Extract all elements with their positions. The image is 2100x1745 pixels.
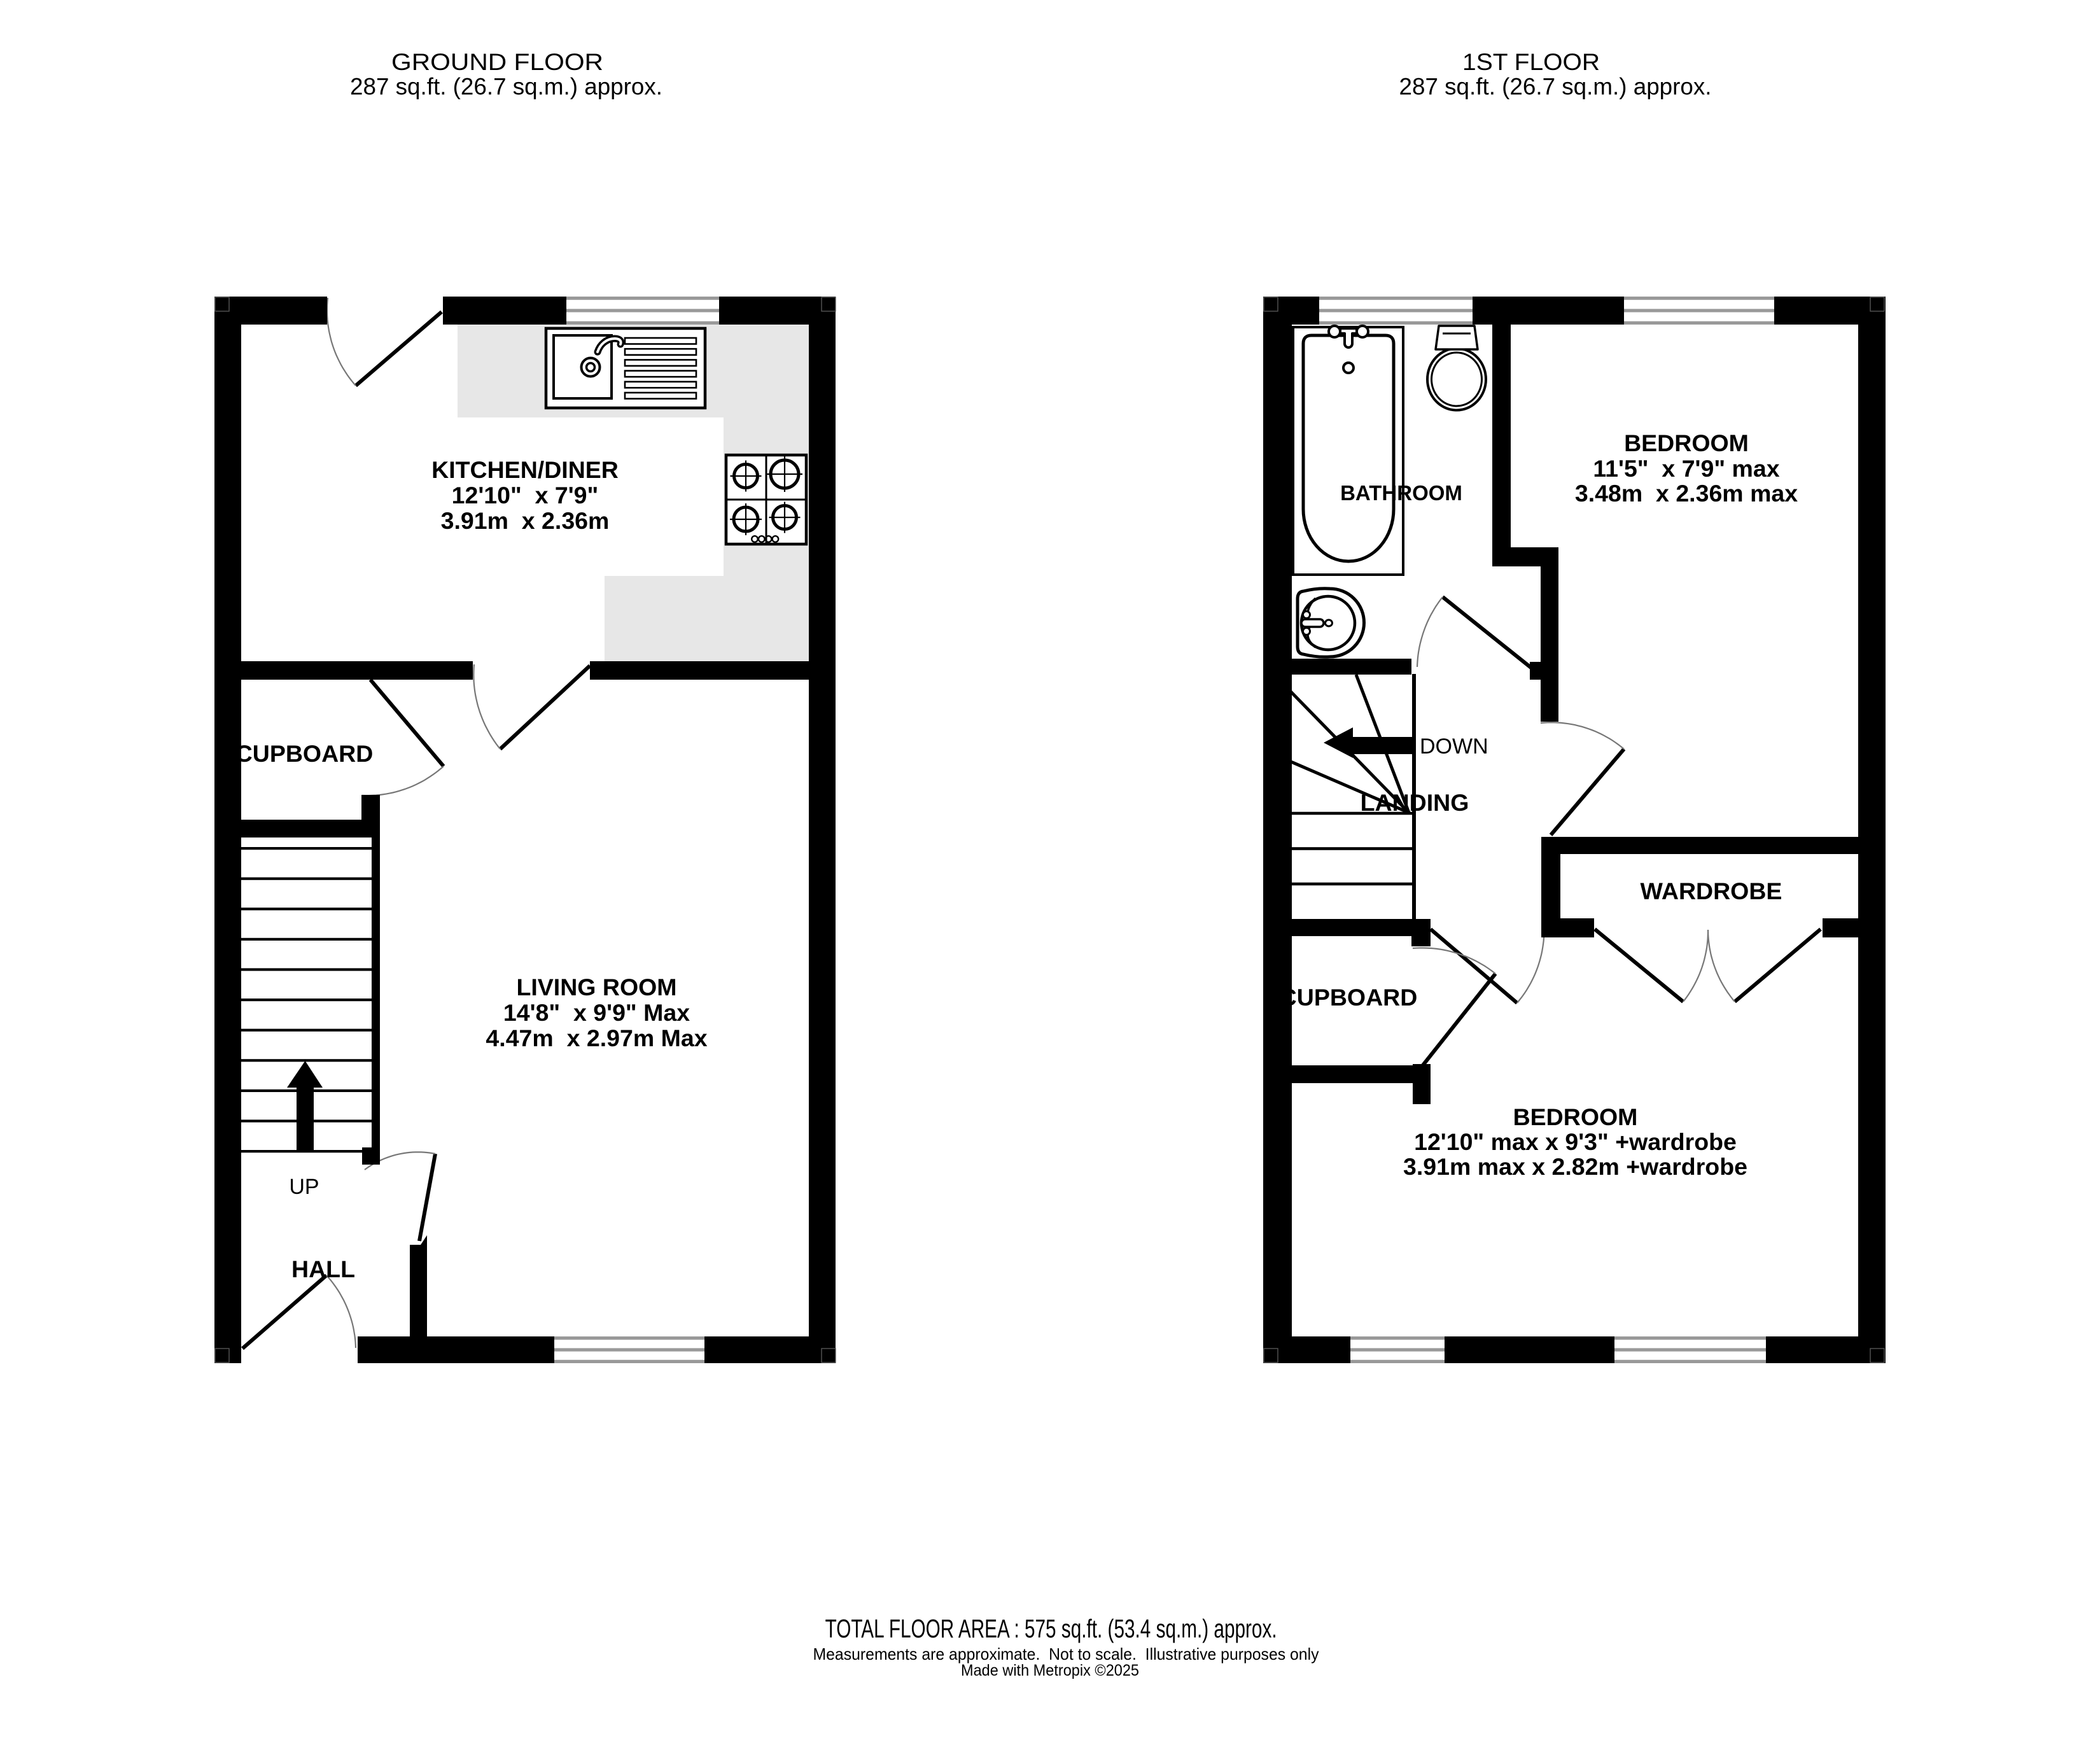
svg-text:3.91m max x 2.82m +wardrobe: 3.91m max x 2.82m +wardrobe	[1403, 1153, 1747, 1180]
svg-text:WARDROBE: WARDROBE	[1641, 878, 1782, 904]
svg-text:12'10" max x 9'3" +wardrobe: 12'10" max x 9'3" +wardrobe	[1414, 1128, 1737, 1155]
svg-text:Measurements are approximate.: Measurements are approximate. Not to sca…	[813, 1644, 1319, 1664]
svg-text:CUPBOARD: CUPBOARD	[1280, 984, 1418, 1011]
svg-text:287 sq.ft. (26.7 sq.m.) approx: 287 sq.ft. (26.7 sq.m.) approx.	[1399, 74, 1712, 100]
svg-text:1ST FLOOR: 1ST FLOOR	[1462, 49, 1600, 75]
svg-text:BATHROOM: BATHROOM	[1340, 481, 1462, 505]
svg-text:KITCHEN/DINER: KITCHEN/DINER	[431, 456, 619, 483]
svg-text:12'10" x 7'9": 12'10" x 7'9"	[452, 482, 599, 508]
svg-text:4.47m x 2.97m Max: 4.47m x 2.97m Max	[486, 1025, 707, 1051]
svg-text:UP: UP	[289, 1175, 319, 1199]
svg-text:Made with Metropix ©2025: Made with Metropix ©2025	[961, 1662, 1139, 1679]
svg-text:11'5" x 7'9" max: 11'5" x 7'9" max	[1593, 455, 1779, 482]
svg-text:LIVING ROOM: LIVING ROOM	[516, 974, 676, 1000]
svg-text:BEDROOM: BEDROOM	[1624, 430, 1749, 456]
svg-text:3.48m x 2.36m max: 3.48m x 2.36m max	[1575, 480, 1798, 507]
svg-text:3.91m x 2.36m: 3.91m x 2.36m	[441, 507, 610, 534]
svg-text:287 sq.ft. (26.7 sq.m.) approx: 287 sq.ft. (26.7 sq.m.) approx.	[350, 74, 662, 100]
svg-text:DOWN: DOWN	[1420, 734, 1488, 759]
svg-text:14'8" x 9'9" Max: 14'8" x 9'9" Max	[503, 999, 690, 1026]
svg-text:TOTAL FLOOR AREA : 575 sq.ft.: TOTAL FLOOR AREA : 575 sq.ft. (53.4 sq.m…	[825, 1614, 1277, 1643]
svg-text:LANDING: LANDING	[1361, 789, 1469, 816]
svg-text:BEDROOM: BEDROOM	[1513, 1104, 1638, 1130]
svg-text:GROUND FLOOR: GROUND FLOOR	[391, 49, 603, 75]
svg-text:CUPBOARD: CUPBOARD	[235, 740, 374, 767]
svg-text:HALL: HALL	[291, 1256, 355, 1282]
